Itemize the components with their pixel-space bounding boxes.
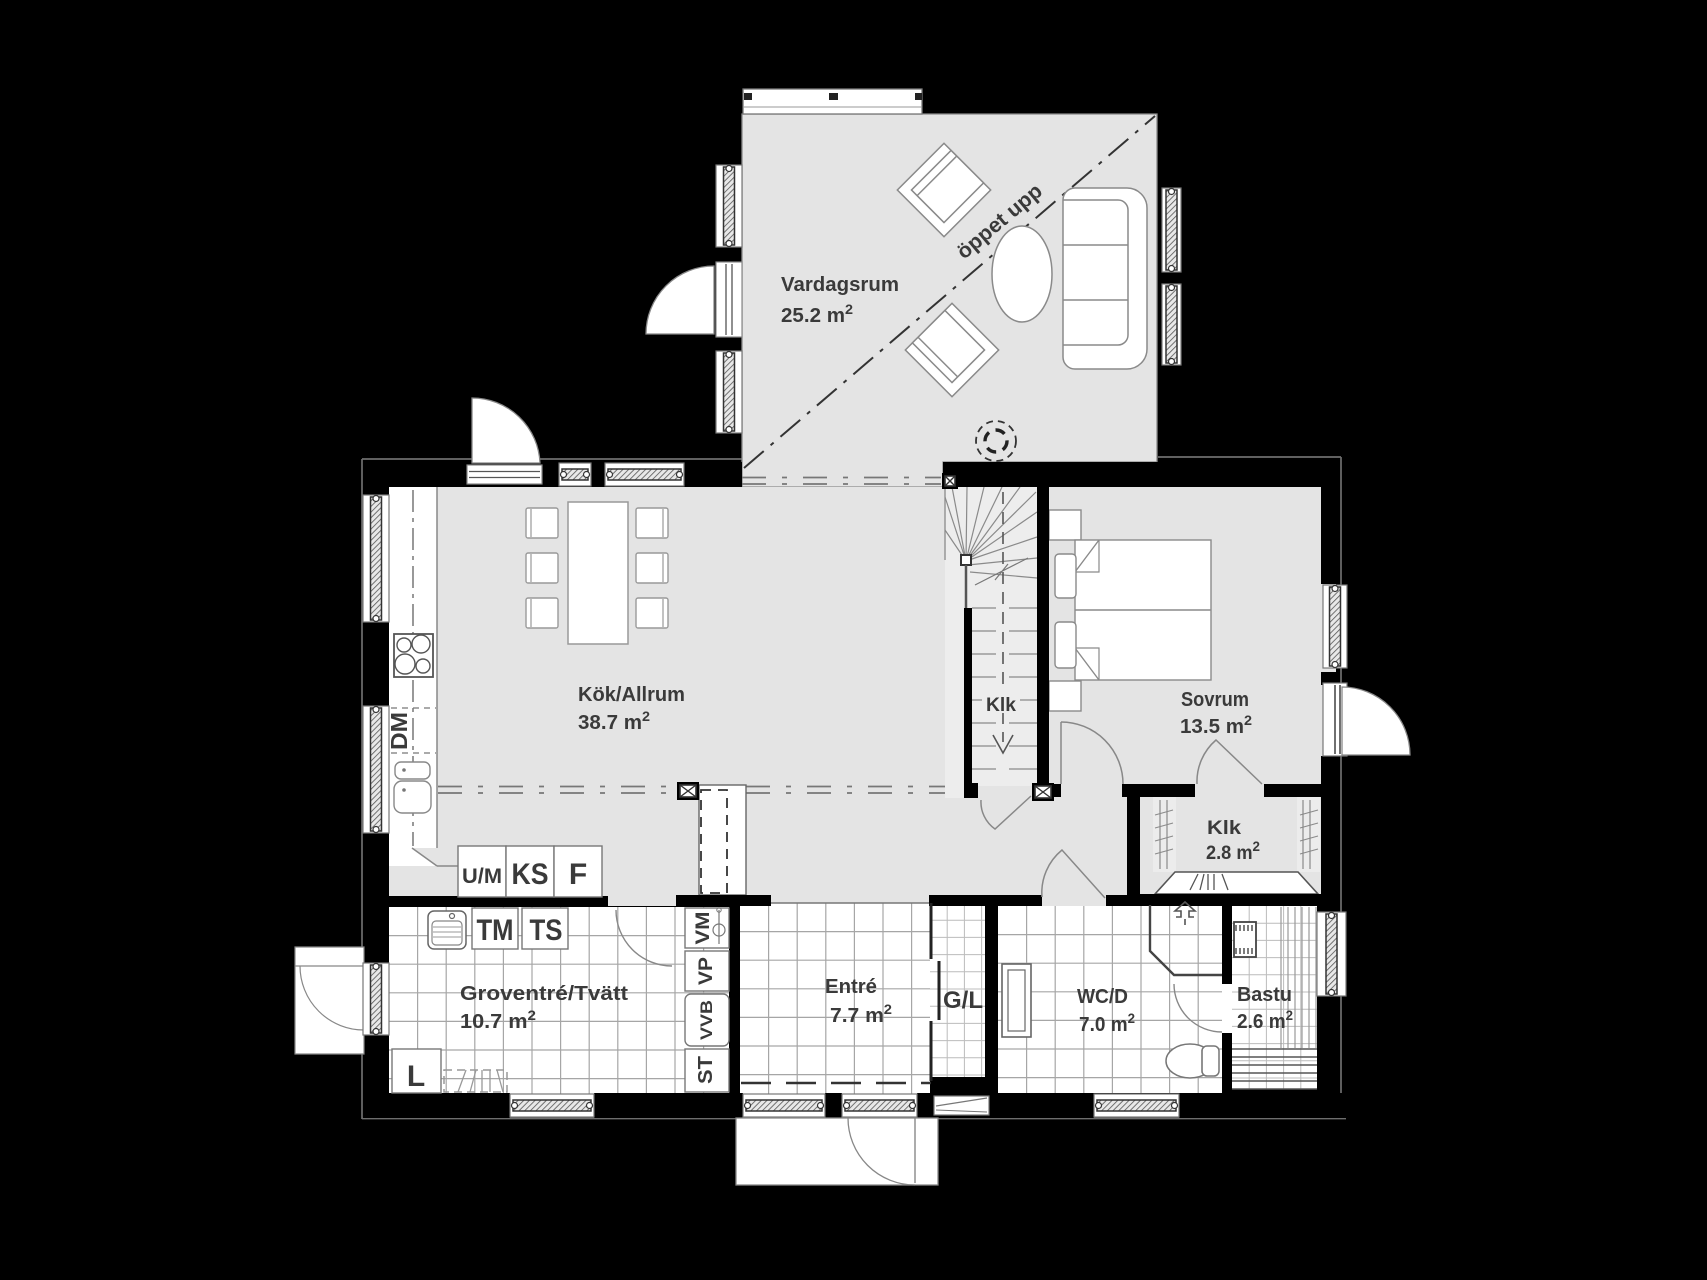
- svg-text:U/M: U/M: [462, 865, 502, 888]
- svg-text:Entré: Entré: [825, 976, 877, 998]
- svg-text:ST: ST: [695, 1056, 717, 1084]
- svg-text:Sovrum: Sovrum: [1181, 689, 1249, 711]
- svg-text:TM: TM: [477, 914, 514, 947]
- svg-text:DM: DM: [386, 712, 412, 750]
- svg-text:VVB: VVB: [697, 1000, 716, 1040]
- svg-text:L: L: [407, 1060, 425, 1093]
- svg-text:VP: VP: [696, 957, 717, 985]
- svg-text:25.2 m2: 25.2 m2: [781, 301, 853, 327]
- svg-text:VM: VM: [693, 912, 714, 945]
- svg-text:13.5 m2: 13.5 m2: [1180, 712, 1252, 738]
- svg-text:WC/D: WC/D: [1077, 986, 1128, 1008]
- svg-text:Bastu: Bastu: [1237, 984, 1292, 1006]
- svg-text:F: F: [569, 858, 587, 891]
- svg-text:2.6 m2: 2.6 m2: [1237, 1007, 1293, 1033]
- svg-text:Vardagsrum: Vardagsrum: [781, 274, 899, 296]
- svg-text:KS: KS: [512, 858, 549, 891]
- svg-text:10.7 m2: 10.7 m2: [460, 1007, 536, 1033]
- svg-text:7.7 m2: 7.7 m2: [830, 1001, 892, 1027]
- svg-text:Klk: Klk: [986, 695, 1016, 716]
- svg-text:Groventré/Tvätt: Groventré/Tvätt: [460, 983, 628, 1005]
- svg-text:38.7 m2: 38.7 m2: [578, 708, 650, 734]
- svg-text:Kök/Allrum: Kök/Allrum: [578, 684, 685, 706]
- svg-text:TS: TS: [530, 914, 563, 947]
- svg-text:7.0 m2: 7.0 m2: [1079, 1010, 1135, 1036]
- svg-text:G/L: G/L: [943, 987, 983, 1014]
- svg-text:Klk: Klk: [1207, 818, 1241, 839]
